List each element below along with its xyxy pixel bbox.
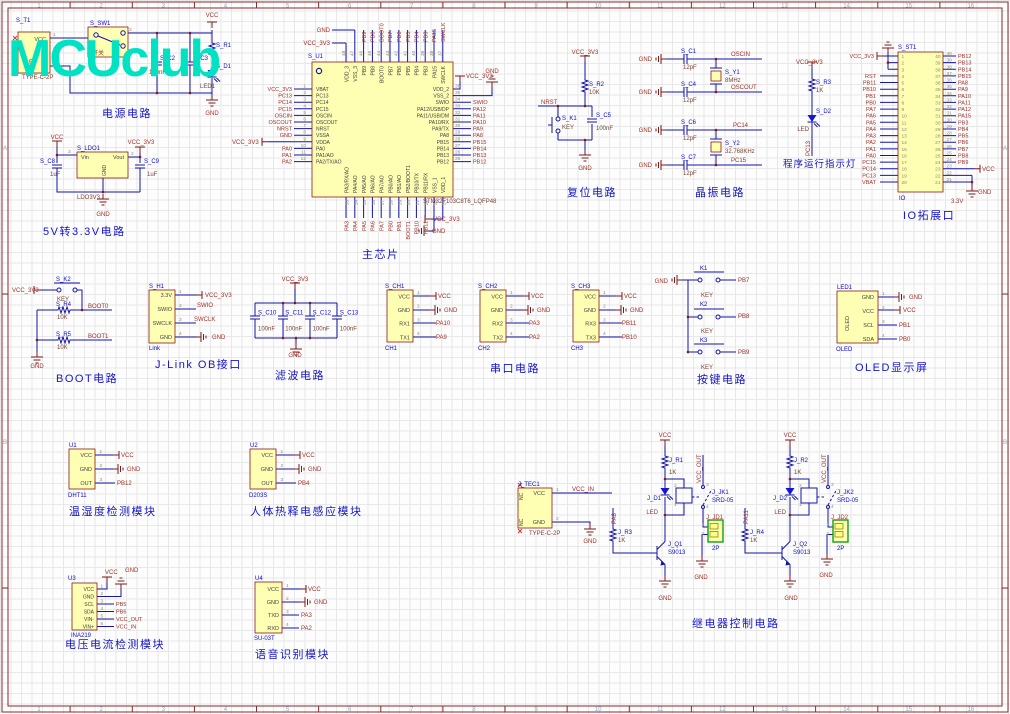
zone-number: 16 (968, 4, 975, 10)
zone-letter: B (1003, 440, 1007, 446)
net-label: GND (212, 335, 226, 341)
net-label: GND (317, 28, 331, 34)
key-contact (73, 288, 77, 292)
value-label: 1K (750, 538, 757, 544)
pin-number: 40 (411, 50, 417, 56)
pin-number: 1 (417, 290, 420, 296)
pin-name: PA4/AO (353, 175, 359, 193)
pin-number: 26 (455, 150, 461, 156)
ref-des: S_SW1 (90, 21, 111, 27)
circuit-mcu: 123456789101112 VBATPC13PC14PC15OSCINOSC… (232, 22, 499, 261)
ref-des: K3 (700, 338, 708, 344)
section-title: J-Link OB接口 (155, 358, 242, 371)
pin-number: 39 (935, 61, 941, 67)
pin-number: 10 (301, 143, 307, 149)
pin-name: PB8 (371, 66, 377, 76)
pin-number: 21 (947, 177, 953, 183)
relay-unit-2: VCC J_R2 1K J_D2 LED J_Q2 S9013 J_R4 1K … (742, 433, 859, 602)
ref-des: S_C9 (144, 159, 160, 165)
pin-number: 4 (101, 606, 104, 612)
pin-number: 2 (902, 61, 905, 67)
value-label: 100nF (596, 126, 613, 132)
led-symbol[interactable] (786, 488, 799, 500)
value-label: 100nF (258, 327, 275, 333)
value-label: DHT11 (68, 493, 87, 499)
ref-des: J_R2 (794, 458, 809, 464)
net-label: VCC_3V3 (268, 87, 292, 93)
net-label: PA0 (282, 146, 292, 152)
net-label: PB14 (958, 67, 971, 73)
circuit-ldo: VCC VCC_3V3 S_LDO1 Vin Vout GND 3 2 S_C8… (40, 135, 160, 238)
power-bar (300, 585, 306, 593)
zone-number: 13 (781, 707, 788, 713)
pin-number: 35 (947, 84, 953, 90)
ref-des: S_T1 (16, 18, 31, 24)
ref-des: J_JD2 (831, 515, 849, 521)
section-title: 按键电路 (697, 372, 747, 386)
pin-name: VDD_3 (344, 66, 350, 82)
resistor-symbol[interactable] (662, 454, 668, 470)
net-label: PA3 (344, 221, 350, 231)
net-label: GND (639, 90, 653, 96)
pin-name: BOOT0 (380, 66, 386, 83)
pin-name: PB0/AO (388, 175, 394, 193)
net-label: VCC (438, 294, 451, 300)
net-label: GND (288, 353, 302, 359)
pin-name: GND (261, 467, 273, 473)
power-bar (294, 451, 300, 459)
net-label: PB5 (958, 134, 968, 140)
value-label: 12pF (683, 136, 697, 142)
section-title: 继电器控制电路 (692, 616, 780, 630)
pin-number: 35 (935, 87, 941, 93)
relay-coil[interactable] (676, 488, 692, 503)
net-label: GND (537, 308, 551, 314)
pin-number: 3 (68, 149, 71, 155)
gnd-symbol (659, 576, 671, 587)
pin-name: RX2 (492, 322, 503, 328)
circuit-dht: VCCGNDOUT 123 VCC GND PB12 U1 DHT11 温湿度检… (68, 443, 157, 518)
ref-des: U2 (250, 443, 258, 449)
ref-des: S_H1 (149, 284, 165, 290)
net-label: VCC_3V3 (128, 140, 155, 146)
pin-number: 23 (947, 164, 953, 170)
zone-number: 12 (719, 707, 726, 713)
section-title: 电压电流检测模块 (65, 637, 165, 651)
net-label: PB5 (406, 32, 412, 42)
pin-number: 4 (831, 504, 834, 510)
value-label: KEY (701, 293, 713, 299)
pin-number: 1 (674, 502, 677, 508)
led-symbol[interactable] (808, 115, 821, 127)
pin-name: GND (584, 308, 596, 314)
pin-number: 4 (706, 504, 709, 510)
relay-contact (827, 506, 830, 509)
vcc-symbol (102, 577, 112, 583)
value-label: 32.768KHz (725, 149, 755, 155)
pin-number: 4 (417, 331, 420, 337)
net-label: PA3 (866, 134, 876, 140)
gnd-symbol (784, 576, 796, 587)
pin-name: SWIO (157, 307, 172, 313)
value-label: 100nF (340, 327, 357, 333)
ref-des: J_JK2 (837, 490, 854, 496)
vcc-symbol (785, 440, 795, 446)
pin-number: 1 (882, 291, 885, 297)
section-title: 滤波电路 (275, 369, 325, 382)
pin-number: 35 (455, 90, 461, 96)
pin-name: RX1 (399, 322, 410, 328)
net-label: PA2 (866, 140, 876, 146)
zone-number: 11 (657, 707, 664, 713)
zone-number: 12 (719, 4, 726, 10)
pin-number: 2 (603, 304, 606, 310)
pin-number: 38 (429, 50, 435, 56)
resistor-symbol[interactable] (610, 527, 616, 543)
pin-number: 38 (947, 64, 953, 70)
pin-number: 6 (101, 621, 104, 627)
power-bar (894, 306, 900, 314)
net-label: VCC (206, 13, 219, 19)
schematic-sheet: 12345678910111213141516 1234567891011121… (0, 0, 1010, 714)
pin-name: PA5/AO (362, 175, 368, 193)
pin-name: VSSA (316, 133, 330, 139)
net-label: GND (819, 573, 833, 579)
pin-number: 41 (402, 50, 408, 56)
ref-des: S_C5 (596, 113, 612, 119)
sheet-border: 12345678910111213141516 1234567891011121… (2, 2, 1008, 714)
serial-ch1: VCCGNDRX1TX1 1234 VCC GND PA10 PA9 S_CH1… (385, 284, 458, 352)
ref-des: K2 (700, 302, 708, 308)
vcc-symbol (290, 283, 300, 289)
key-contact (556, 117, 560, 121)
net-label: OSCOUT (731, 85, 757, 91)
zone-number: 13 (781, 4, 788, 10)
net-label: GND (432, 229, 446, 235)
net-label: PB1 (397, 221, 403, 231)
pin-name: GND (862, 295, 874, 301)
ref-des: S_K1 (562, 116, 577, 122)
pin-name: PC13 (316, 94, 329, 100)
net-label: VCC (659, 433, 672, 439)
pin-number: 11 (902, 120, 907, 126)
net-label: NRST (541, 100, 558, 106)
circuit-io: 1234567891011121314151617181920 40393837… (850, 42, 996, 222)
pin-number: 17 (380, 200, 386, 206)
circuit-runled: VCC_3V3 S_R3 1K S_D2 LED PC13 程序运行指示灯 (783, 60, 857, 170)
zone-number: 9 (534, 4, 538, 10)
net-label: PA9 (473, 127, 483, 133)
net-label: VCC (531, 294, 544, 300)
pin-number: 37 (947, 71, 953, 77)
resistor-symbol[interactable] (787, 454, 793, 470)
gnd-symbol (656, 160, 666, 170)
circuit-relay: VCC J_R1 1K J_D1 LED J_Q1 S9013 J_R3 1K … (610, 433, 859, 630)
pin-number: 19 (397, 200, 403, 206)
pin-name: PB1/AO (397, 175, 403, 193)
key-contact (698, 278, 702, 282)
net-label: PB11 (863, 81, 876, 87)
pin-number: 13 (902, 134, 908, 140)
circuit-ina: VCCGNDSCLSDAVIN-VIN+ 123456 PB5PB6VCC_OU… (65, 568, 165, 651)
pin-number: 1 (286, 583, 289, 589)
relay-coil[interactable] (801, 488, 817, 503)
pin-name: RXD (267, 626, 279, 632)
pin-number: 4 (286, 622, 289, 628)
net-label: PB9 (738, 350, 750, 356)
pin-name: TXD (268, 613, 279, 619)
pin-name: PB12 (437, 160, 449, 166)
pin-number: 46 (358, 50, 364, 56)
net-label: PB9 (362, 32, 368, 42)
pin-number: 28 (935, 134, 941, 140)
key-contact (716, 278, 720, 282)
value-label: 1uF (147, 172, 158, 178)
pin-number: 36 (947, 78, 953, 84)
net-label: PB5 (116, 602, 126, 608)
pin-number: 2 (101, 591, 104, 597)
pin-name: Vin (81, 155, 89, 161)
net-label: PA7 (380, 221, 386, 231)
pin-number: 8 (303, 130, 306, 136)
pin-name: OLED (845, 316, 851, 331)
pin-number: 3 (882, 319, 885, 325)
pin-number: 2 (417, 304, 420, 310)
pin-name: VSS_3 (353, 66, 359, 82)
pin-number: 1 (101, 584, 104, 590)
pin-number: 25 (947, 150, 953, 156)
pin-name: VSS_2 (433, 94, 449, 100)
pin-number: 40 (935, 54, 941, 60)
pin-name: PB15 (437, 140, 449, 146)
net-label: PB4 (958, 127, 968, 133)
pin-name: PA12/USB/DP (417, 107, 450, 113)
net-label: PA2 (529, 335, 541, 341)
net-label: GND (639, 57, 653, 63)
pin-name: OSCOUT (316, 120, 337, 126)
pin-number: 4 (510, 331, 513, 337)
net-label: PA3 (301, 613, 313, 619)
ref-des: S_CH1 (385, 284, 405, 290)
pin-name: PB6 (397, 66, 403, 76)
net-label: PB1 (866, 94, 876, 100)
led-symbol[interactable] (661, 488, 674, 500)
pin-number: 22 (935, 173, 941, 179)
section-title: 晶振电路 (695, 185, 745, 199)
pin-number: 18 (389, 200, 395, 206)
net-label: VCC_3V3 (433, 217, 460, 223)
pin-number: 1 (100, 449, 103, 455)
connector-pad (710, 532, 718, 538)
pin-name: GND (83, 595, 95, 601)
net-label: OSCIN (731, 52, 750, 58)
value-label: OLED (836, 347, 853, 353)
pin-number: 3 (510, 317, 513, 323)
ref-des: J_D2 (773, 496, 788, 502)
net-label: OSCOUT (268, 120, 292, 126)
pin-name: SWIO (436, 100, 449, 106)
pin-name: GND (398, 308, 410, 314)
value-label: STM32F103C8T6_LQFP48 (423, 199, 497, 205)
pin-name: Vout (113, 155, 124, 161)
power-bar (877, 52, 883, 60)
net-label: PB8 (738, 314, 750, 320)
value-label: LED (646, 510, 658, 516)
net-label: PA12 (473, 107, 486, 113)
pin-name: TX2 (493, 335, 503, 341)
value-label: KEY (562, 125, 574, 131)
pin-number: 17 (902, 160, 908, 166)
pin-number: 1 (281, 449, 284, 455)
net-label: BOOT0 (379, 23, 385, 42)
pin-name: NC (519, 518, 525, 526)
value-label: 12pF (683, 171, 697, 177)
pin-number: 3 (902, 67, 905, 73)
net-label: PB6 (958, 140, 968, 146)
pin-number: 16 (902, 153, 908, 159)
net-label: VCC (784, 433, 797, 439)
value-label: 12pF (683, 98, 697, 104)
pin-name: PA6/AO (371, 175, 377, 193)
connector-pad (710, 524, 718, 530)
resistor-symbol[interactable] (809, 77, 815, 93)
schematic-canvas[interactable]: 12345678910111213141516 1234567891011121… (0, 0, 1010, 714)
net-label: VCC_3V3 (282, 277, 309, 283)
net-label: PA8 (612, 512, 618, 524)
pin-number: 31 (935, 114, 941, 120)
pin-number: 7 (902, 94, 905, 100)
ref-des: S_C1 (681, 49, 697, 55)
pin-number: 2 (882, 305, 885, 311)
gnd-symbol (579, 150, 591, 161)
key-contact (716, 315, 720, 319)
ref-des: S_CH2 (478, 284, 498, 290)
value-label: KEY (701, 365, 713, 371)
zone-number: 7 (410, 4, 414, 10)
net-label: PC15 (862, 160, 876, 166)
ref-des: S_Y1 (725, 70, 740, 76)
resistor-symbol[interactable] (742, 527, 748, 543)
pin-name: PA8 (440, 133, 449, 139)
ref-des: S_Y2 (725, 141, 740, 147)
net-label: VCC_OUT (822, 454, 828, 483)
pin-number: 39 (420, 50, 426, 56)
net-label: PC14 (278, 100, 292, 106)
pin-number: 31 (455, 117, 461, 123)
pin-name: VIN+ (83, 625, 94, 631)
net-label: VCC (624, 294, 637, 300)
gnd-symbol (584, 524, 596, 535)
net-label: PC13 (862, 173, 876, 179)
zone-letter: A (3, 146, 7, 152)
pin-number: 40 (947, 51, 953, 57)
vcc-symbol (660, 440, 670, 446)
pin-name: PB9 (362, 66, 368, 76)
value-label: 10K (57, 315, 68, 321)
net-label: PB7 (958, 147, 968, 153)
pin-number: 22 (947, 170, 953, 176)
net-label: PB12 (473, 160, 486, 166)
pin-number: 26 (935, 147, 941, 153)
pin-number: 30 (947, 117, 953, 123)
value-label: SU-03T (254, 636, 275, 642)
net-label: PC14 (862, 167, 876, 173)
net-label: VCC_3V3 (205, 293, 232, 299)
value-label: 1K (669, 470, 676, 476)
value-label: S9013 (668, 550, 686, 556)
crystal-body[interactable] (711, 71, 721, 81)
pin-number: 3 (179, 317, 182, 323)
net-label: PB3 (958, 120, 968, 126)
net-label: GND (658, 596, 672, 602)
net-label: GND (694, 575, 708, 581)
net-label: PB7 (738, 278, 750, 284)
pin-number: 27 (455, 143, 461, 149)
power-bar (262, 138, 268, 146)
circuit-serial: VCCGNDRX1TX1 1234 VCC GND PA10 PA9 S_CH1… (385, 284, 644, 375)
ref-des: J_JK1 (712, 490, 729, 496)
net-label: BOOT0 (88, 304, 109, 310)
net-label: GND (308, 467, 322, 473)
value-label: Link (149, 346, 161, 352)
value-label: SRD-05 (712, 498, 734, 504)
pin-number: 2 (556, 516, 559, 522)
circuit-typec-in: NC NC VCC GND 1 2 VCC_IN GND J_TEC1 TYPE… (518, 482, 612, 545)
crystal-body[interactable] (711, 142, 721, 152)
ref-des: S_ST1 (898, 45, 917, 51)
power-bar (430, 292, 436, 300)
ref-des: S_K2 (56, 277, 71, 283)
ref-des: S_C6 (681, 120, 697, 126)
net-label: GND (444, 308, 458, 314)
resistor-symbol[interactable] (582, 78, 588, 94)
relay-contact (827, 486, 830, 489)
vcc-symbol (135, 147, 145, 153)
circuit-filter: S_C10S_C11S_C12S_C13 100nF100nF100nF100n… (250, 277, 359, 382)
net-label: GND (205, 111, 219, 117)
zone-number: 1 (37, 4, 41, 10)
pin-number: 47 (350, 50, 356, 56)
circuit-xtal: GND GND GND GND S_C1 12pF S_C4 12pF S_C6… (639, 49, 762, 199)
pin-name: PB4 (415, 66, 421, 76)
net-label: PB8 (958, 153, 968, 159)
value-label: 8MHz (725, 78, 741, 84)
net-label: PC15 (731, 158, 747, 164)
net-label: PB12 (117, 481, 132, 487)
net-label: VCC (903, 308, 916, 314)
section-title: 5V转3.3V电路 (43, 224, 126, 238)
net-label: PB13 (473, 153, 486, 159)
pin-name: VIN- (84, 617, 94, 623)
pin-number: 38 (935, 67, 941, 73)
pin-name: VDD_1 (441, 177, 447, 193)
net-label: GND (578, 166, 592, 172)
pin-name: PB11/RX (424, 172, 430, 193)
ref-des: J_R1 (669, 458, 684, 464)
pin-number: 3 (286, 609, 289, 615)
pin-number: 1 (510, 290, 513, 296)
gnd-symbol (656, 125, 666, 135)
pin-number: 2 (674, 483, 677, 489)
pin-number: 5 (101, 614, 104, 620)
section-title: 语音识别模块 (255, 647, 330, 661)
net-label: PC13 (278, 94, 292, 100)
net-label: PC13 (806, 140, 812, 156)
pin-name: GND (267, 600, 279, 606)
pin-name: SDA (84, 610, 95, 616)
net-label: PA12 (958, 107, 971, 113)
net-label: PB1 (899, 323, 911, 329)
